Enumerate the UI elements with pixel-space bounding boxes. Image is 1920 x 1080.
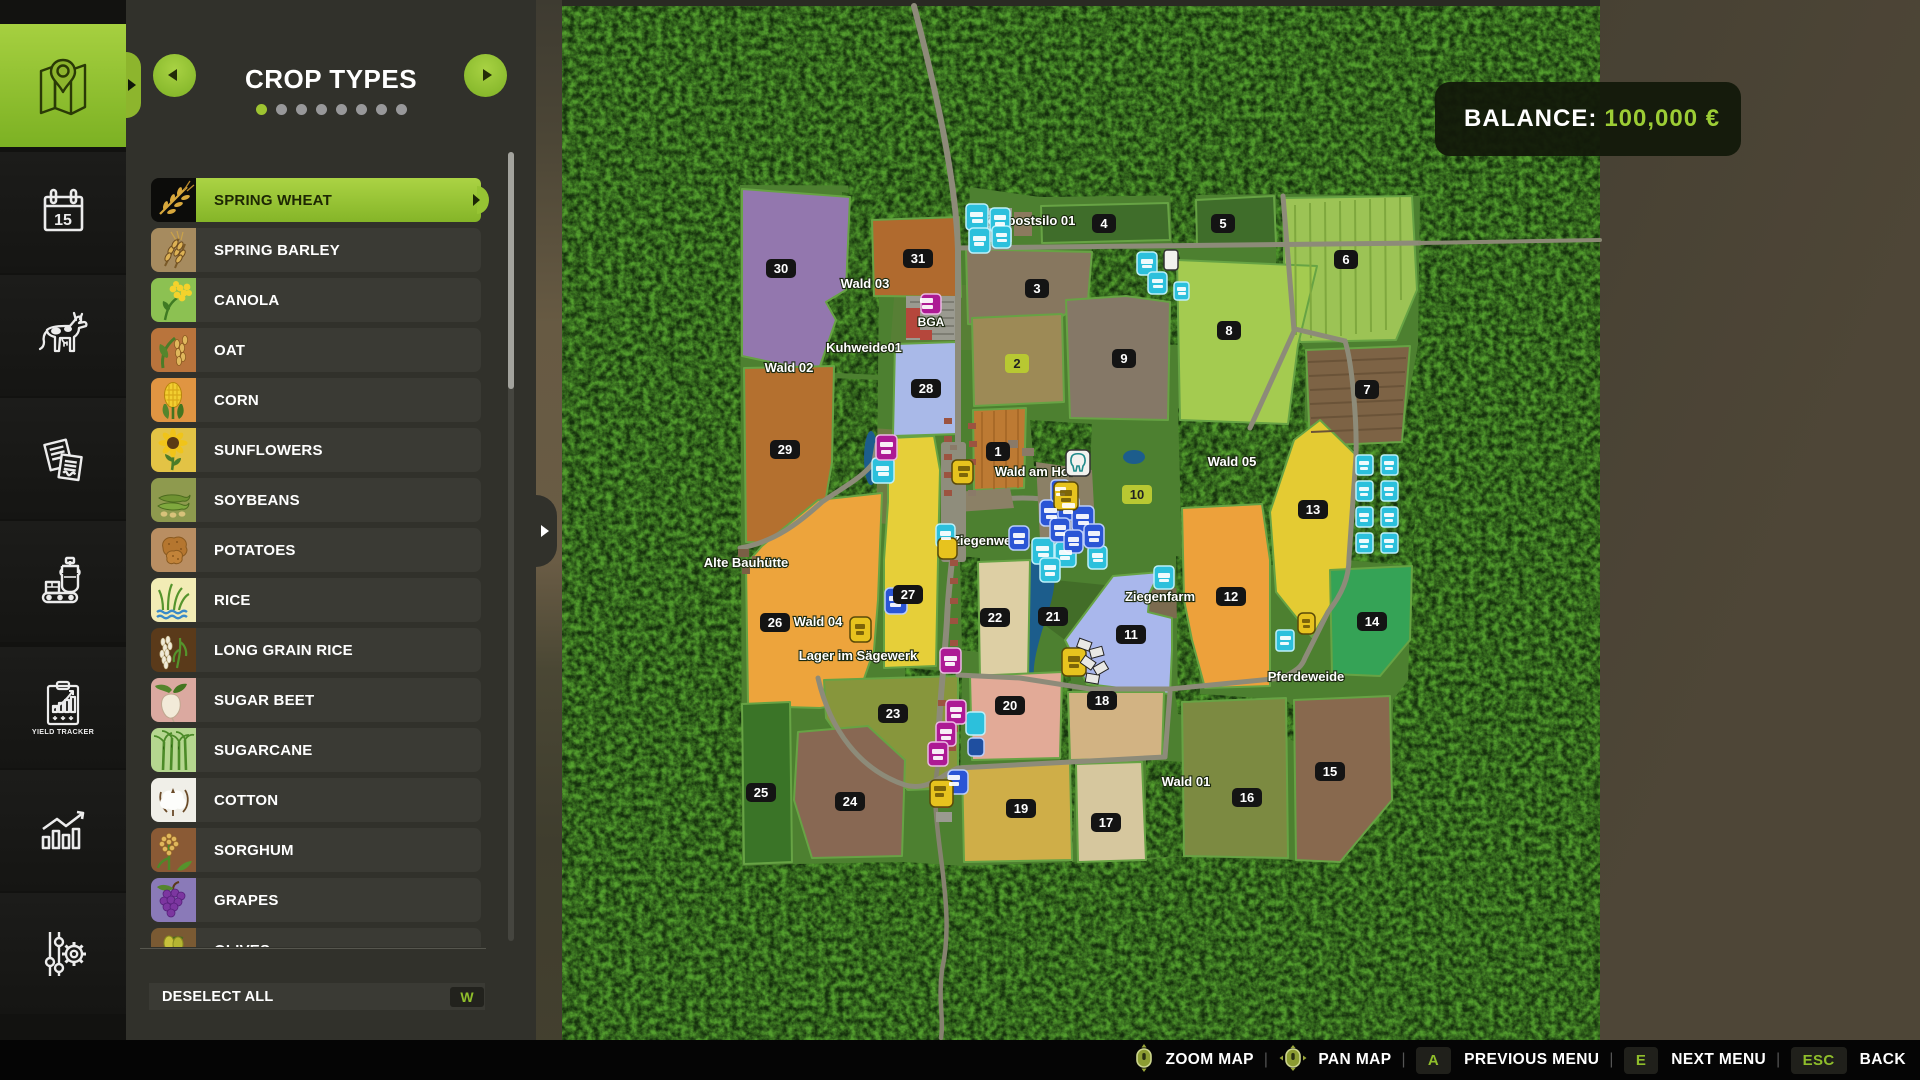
svg-text:15: 15 bbox=[1323, 764, 1337, 779]
svg-text:21: 21 bbox=[1046, 609, 1060, 624]
svg-text:YIELD TRACKER: YIELD TRACKER bbox=[32, 727, 95, 736]
svg-text:30: 30 bbox=[774, 261, 788, 276]
svg-text:Alte Bauhütte: Alte Bauhütte bbox=[704, 555, 789, 570]
svg-text:2: 2 bbox=[1013, 356, 1020, 371]
svg-text:BGA: BGA bbox=[918, 315, 945, 329]
svg-text:1: 1 bbox=[994, 444, 1001, 459]
svg-text:8: 8 bbox=[1225, 323, 1232, 338]
svg-text:14: 14 bbox=[1365, 614, 1380, 629]
svg-text:Wald 02: Wald 02 bbox=[765, 360, 814, 375]
svg-text:11: 11 bbox=[1124, 627, 1138, 642]
svg-text:16: 16 bbox=[1240, 790, 1254, 805]
svg-text:29: 29 bbox=[778, 442, 792, 457]
svg-text:25: 25 bbox=[754, 785, 768, 800]
svg-text:3: 3 bbox=[1033, 281, 1040, 296]
svg-text:15: 15 bbox=[54, 212, 72, 229]
svg-text:27: 27 bbox=[901, 587, 915, 602]
svg-text:7: 7 bbox=[1363, 382, 1370, 397]
svg-text:Ziegenfarm: Ziegenfarm bbox=[1125, 589, 1195, 604]
svg-text:19: 19 bbox=[1014, 801, 1028, 816]
svg-text:9: 9 bbox=[1120, 351, 1127, 366]
svg-text:28: 28 bbox=[919, 381, 933, 396]
svg-text:12: 12 bbox=[1224, 589, 1238, 604]
svg-text:6: 6 bbox=[1342, 252, 1349, 267]
svg-text:Kuhweide01: Kuhweide01 bbox=[826, 340, 902, 355]
svg-text:Wald 04: Wald 04 bbox=[794, 614, 843, 629]
svg-text:Lager im Sägewerk: Lager im Sägewerk bbox=[799, 648, 918, 663]
svg-text:18: 18 bbox=[1095, 693, 1109, 708]
svg-text:Wald am Hof: Wald am Hof bbox=[995, 464, 1074, 479]
svg-text:Wald 05: Wald 05 bbox=[1208, 454, 1257, 469]
svg-text:24: 24 bbox=[843, 794, 858, 809]
svg-text:20: 20 bbox=[1003, 698, 1017, 713]
svg-text:Pferdeweide: Pferdeweide bbox=[1268, 669, 1345, 684]
svg-text:Wald 01: Wald 01 bbox=[1162, 774, 1211, 789]
svg-text:26: 26 bbox=[768, 615, 782, 630]
svg-text:22: 22 bbox=[988, 610, 1002, 625]
svg-text:5: 5 bbox=[1219, 216, 1226, 231]
svg-text:10: 10 bbox=[1130, 487, 1144, 502]
svg-text:4: 4 bbox=[1100, 216, 1108, 231]
svg-text:Wald 03: Wald 03 bbox=[841, 276, 890, 291]
svg-text:31: 31 bbox=[911, 251, 925, 266]
svg-text:17: 17 bbox=[1099, 815, 1113, 830]
svg-text:13: 13 bbox=[1306, 502, 1320, 517]
svg-text:23: 23 bbox=[886, 706, 900, 721]
